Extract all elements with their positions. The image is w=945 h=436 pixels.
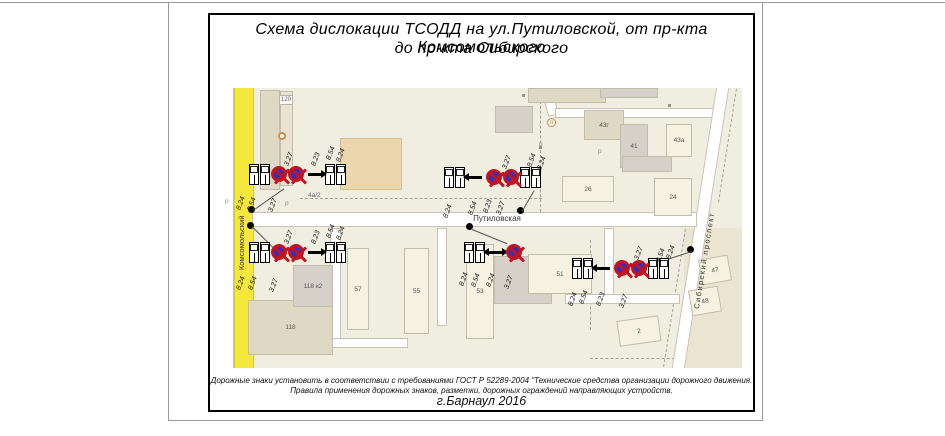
- building-label: 53: [476, 288, 483, 295]
- sign-code-label: 8.24: [665, 245, 676, 260]
- building: [495, 106, 533, 133]
- page-title-line2: до пр-кта Сибирского: [208, 40, 755, 58]
- building-label: 118: [285, 324, 295, 331]
- no-stopping-sign-icon: [486, 169, 502, 185]
- parking-mark: р: [285, 200, 289, 207]
- building: [622, 156, 672, 172]
- no-stopping-sign-icon: [271, 244, 287, 260]
- double-arrow-icon: [489, 251, 502, 254]
- road-west-lane: [222, 88, 234, 368]
- no-stopping-sign-icon: [631, 260, 647, 276]
- building-55: 55: [404, 248, 429, 334]
- road-service-1h: [330, 338, 408, 348]
- building-label: 118 к2: [304, 283, 323, 290]
- building-label: 51: [556, 271, 563, 278]
- building-43g: 43г: [584, 110, 624, 140]
- sign-plate-icon: [572, 258, 582, 279]
- building-label: 43г: [599, 122, 609, 129]
- map: 43г 41 43а 26 24 47 48 2 118 118 к2 57 5…: [222, 88, 742, 368]
- building-label: 57: [354, 286, 361, 293]
- direction-arrow-icon: [308, 173, 321, 176]
- sign-group-2: [444, 165, 541, 189]
- sign-plate-icon: [249, 164, 259, 185]
- road-service-2v: [437, 228, 447, 326]
- sign-code-label: 3.27: [267, 198, 278, 213]
- sign-plate-icon: [336, 242, 346, 263]
- poi-p-marker-icon: п: [547, 118, 556, 127]
- building-43a: 43а: [666, 124, 692, 157]
- parking-mark: р: [225, 198, 229, 205]
- building-118: 118: [248, 300, 333, 355]
- building-26: 26: [562, 176, 614, 202]
- building-label: 43а: [674, 137, 685, 144]
- building-label: 24: [669, 194, 676, 201]
- building-label: 2: [637, 327, 642, 334]
- sign-plate-icon: [260, 242, 270, 263]
- sign-plate-icon: [444, 167, 454, 188]
- no-stopping-sign-icon: [288, 244, 304, 260]
- footer-note-line1: Дорожные знаки установить в соответствии…: [208, 376, 755, 385]
- street-name-komsomolsky: Комсомольский: [237, 165, 246, 270]
- no-stopping-sign-icon: [271, 166, 287, 182]
- sign-group-3: [249, 240, 346, 264]
- building-2: 2: [616, 315, 661, 347]
- sign-group-1: [249, 162, 346, 186]
- building-label-120: 120: [279, 95, 293, 105]
- building-label: 55: [413, 288, 420, 295]
- boundary-dash: [300, 198, 542, 199]
- building-label: 41: [630, 143, 637, 150]
- direction-arrow-icon: [469, 176, 482, 179]
- no-stopping-sign-icon: [503, 169, 519, 185]
- road-top-right: [555, 108, 715, 118]
- building-24: 24: [654, 178, 692, 216]
- building-label: 47: [711, 266, 719, 274]
- sign-plate-icon: [260, 164, 270, 185]
- leader-line: [522, 190, 535, 211]
- building: [600, 88, 658, 98]
- building: [340, 138, 402, 190]
- scheme-page: Схема дислокации ТСОДД на ул.Путиловской…: [0, 0, 945, 436]
- no-stopping-sign-icon: [614, 260, 630, 276]
- sign-group-4: [464, 240, 522, 264]
- building-57: 57: [347, 248, 369, 330]
- building-label-4a2: 4а/2: [308, 192, 321, 199]
- sign-code-label: 3.27: [268, 278, 279, 293]
- no-stopping-sign-icon: [506, 244, 522, 260]
- direction-arrow-icon: [597, 267, 610, 270]
- no-stopping-sign-icon: [288, 166, 304, 182]
- boundary-dash: [540, 96, 541, 212]
- building: [528, 88, 606, 103]
- building-118k2: 118 к2: [293, 265, 333, 307]
- sign-plate-icon: [249, 242, 259, 263]
- sign-code-label: 8.24: [536, 156, 547, 171]
- boundary-node: [522, 94, 525, 97]
- parking-mark: р: [598, 148, 602, 155]
- sign-plate-icon: [464, 242, 474, 263]
- parking-mark: р: [539, 141, 543, 148]
- sign-plate-icon: [336, 164, 346, 185]
- boundary-dash: [590, 358, 685, 359]
- footer-city-year: г.Барнаул 2016: [208, 394, 755, 408]
- direction-arrow-icon: [308, 251, 321, 254]
- building-label: 26: [584, 186, 591, 193]
- boundary-node: [668, 104, 671, 107]
- poi-marker-icon: [278, 132, 286, 140]
